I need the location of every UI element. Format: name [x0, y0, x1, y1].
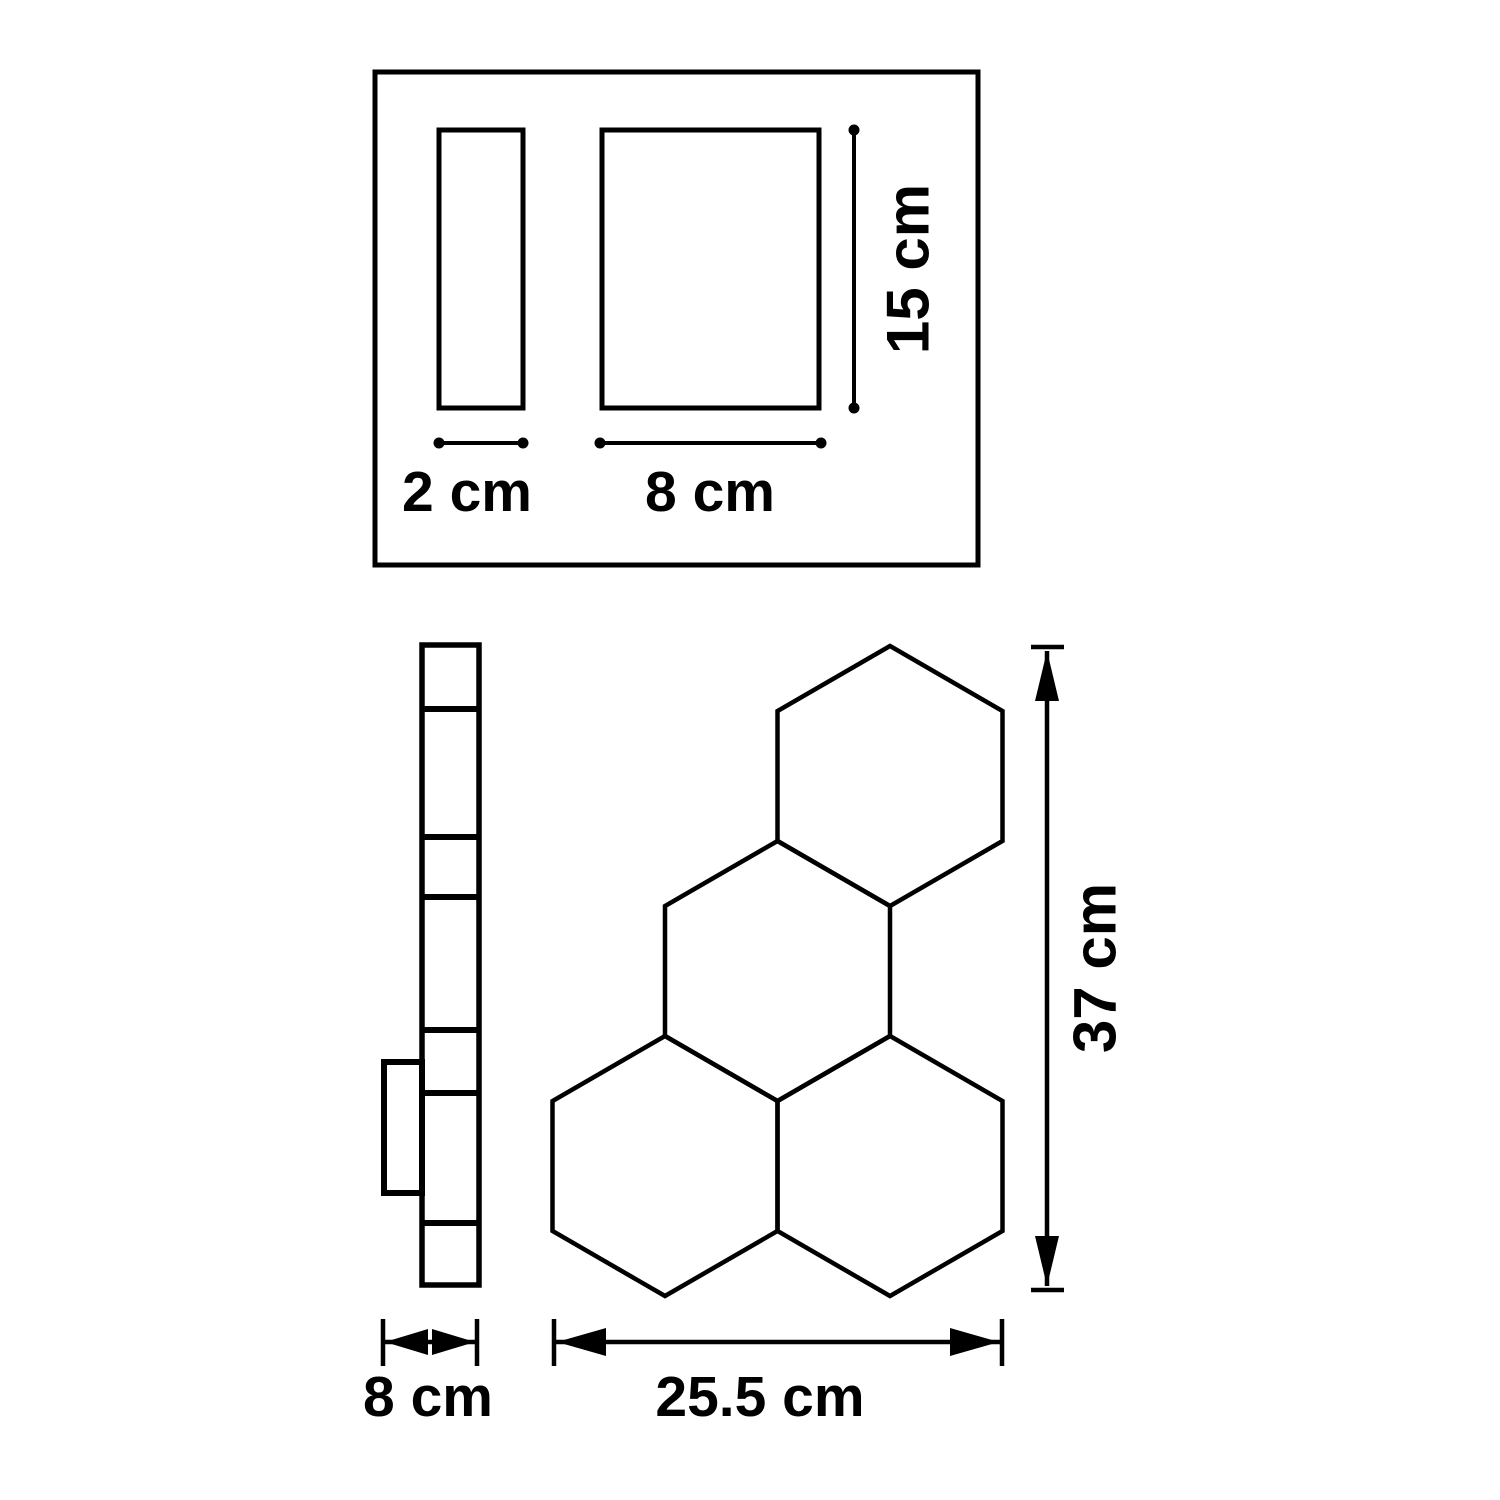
- dim-2cm: 2 cm: [402, 438, 532, 525]
- dim-8cm-top: 8 cm: [595, 438, 827, 525]
- side-strip: [422, 645, 479, 1285]
- dim-dot: [849, 125, 860, 136]
- hexagon-bottom-left: [553, 1036, 778, 1296]
- panel-front-face-rect: [602, 130, 819, 408]
- dim-dot: [518, 438, 529, 449]
- dim-37cm: 37 cm: [1031, 647, 1129, 1290]
- label-15cm: 15 cm: [875, 184, 942, 354]
- arrowhead-left: [557, 1328, 606, 1356]
- arrowhead-left: [385, 1329, 428, 1355]
- dim-8cm-bottom: 8 cm: [363, 1319, 493, 1429]
- hexagon-bottom-right: [778, 1036, 1003, 1296]
- label-8cm-top: 8 cm: [645, 460, 775, 524]
- dim-dot: [816, 438, 827, 449]
- hexagon-middle: [665, 841, 890, 1101]
- diagram-svg: 15 cm 2 cm 8 cm: [0, 0, 1500, 1500]
- dim-dot: [434, 438, 445, 449]
- dimension-diagram: 15 cm 2 cm 8 cm: [0, 0, 1500, 1500]
- arrowhead-right: [950, 1328, 999, 1356]
- arrowhead-down: [1035, 1236, 1059, 1286]
- label-25-5cm: 25.5 cm: [655, 1365, 864, 1429]
- dim-25-5cm: 25.5 cm: [554, 1319, 1002, 1429]
- top-view-group: 15 cm 2 cm 8 cm: [375, 72, 978, 565]
- side-view-group: 8 cm: [363, 645, 493, 1429]
- panel-side-profile-rect: [439, 130, 523, 408]
- label-37cm: 37 cm: [1062, 883, 1129, 1053]
- dim-dot: [595, 438, 606, 449]
- arrowhead-up: [1035, 651, 1059, 701]
- dim-dot: [849, 403, 860, 414]
- arrowhead-right: [432, 1329, 475, 1355]
- label-2cm: 2 cm: [402, 460, 532, 524]
- hexagon-top: [778, 646, 1003, 906]
- label-8cm-bottom: 8 cm: [363, 1365, 493, 1429]
- mount-bracket: [384, 1062, 422, 1193]
- front-view-group: 37 cm 25.5 cm: [553, 646, 1129, 1429]
- dim-15cm: 15 cm: [849, 125, 942, 414]
